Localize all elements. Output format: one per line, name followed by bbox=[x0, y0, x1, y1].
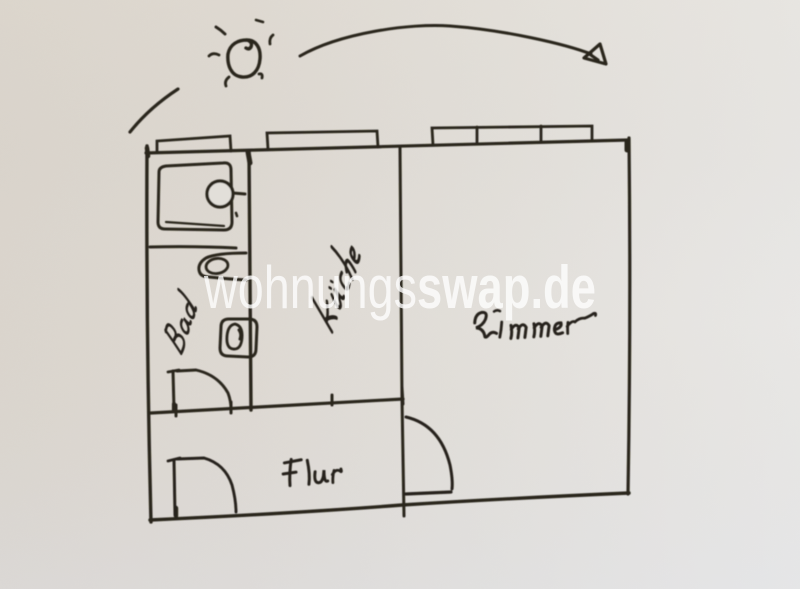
svg-text:wohnungs: wohnungs bbox=[203, 254, 417, 321]
svg-text:swap.de: swap.de bbox=[417, 254, 596, 321]
